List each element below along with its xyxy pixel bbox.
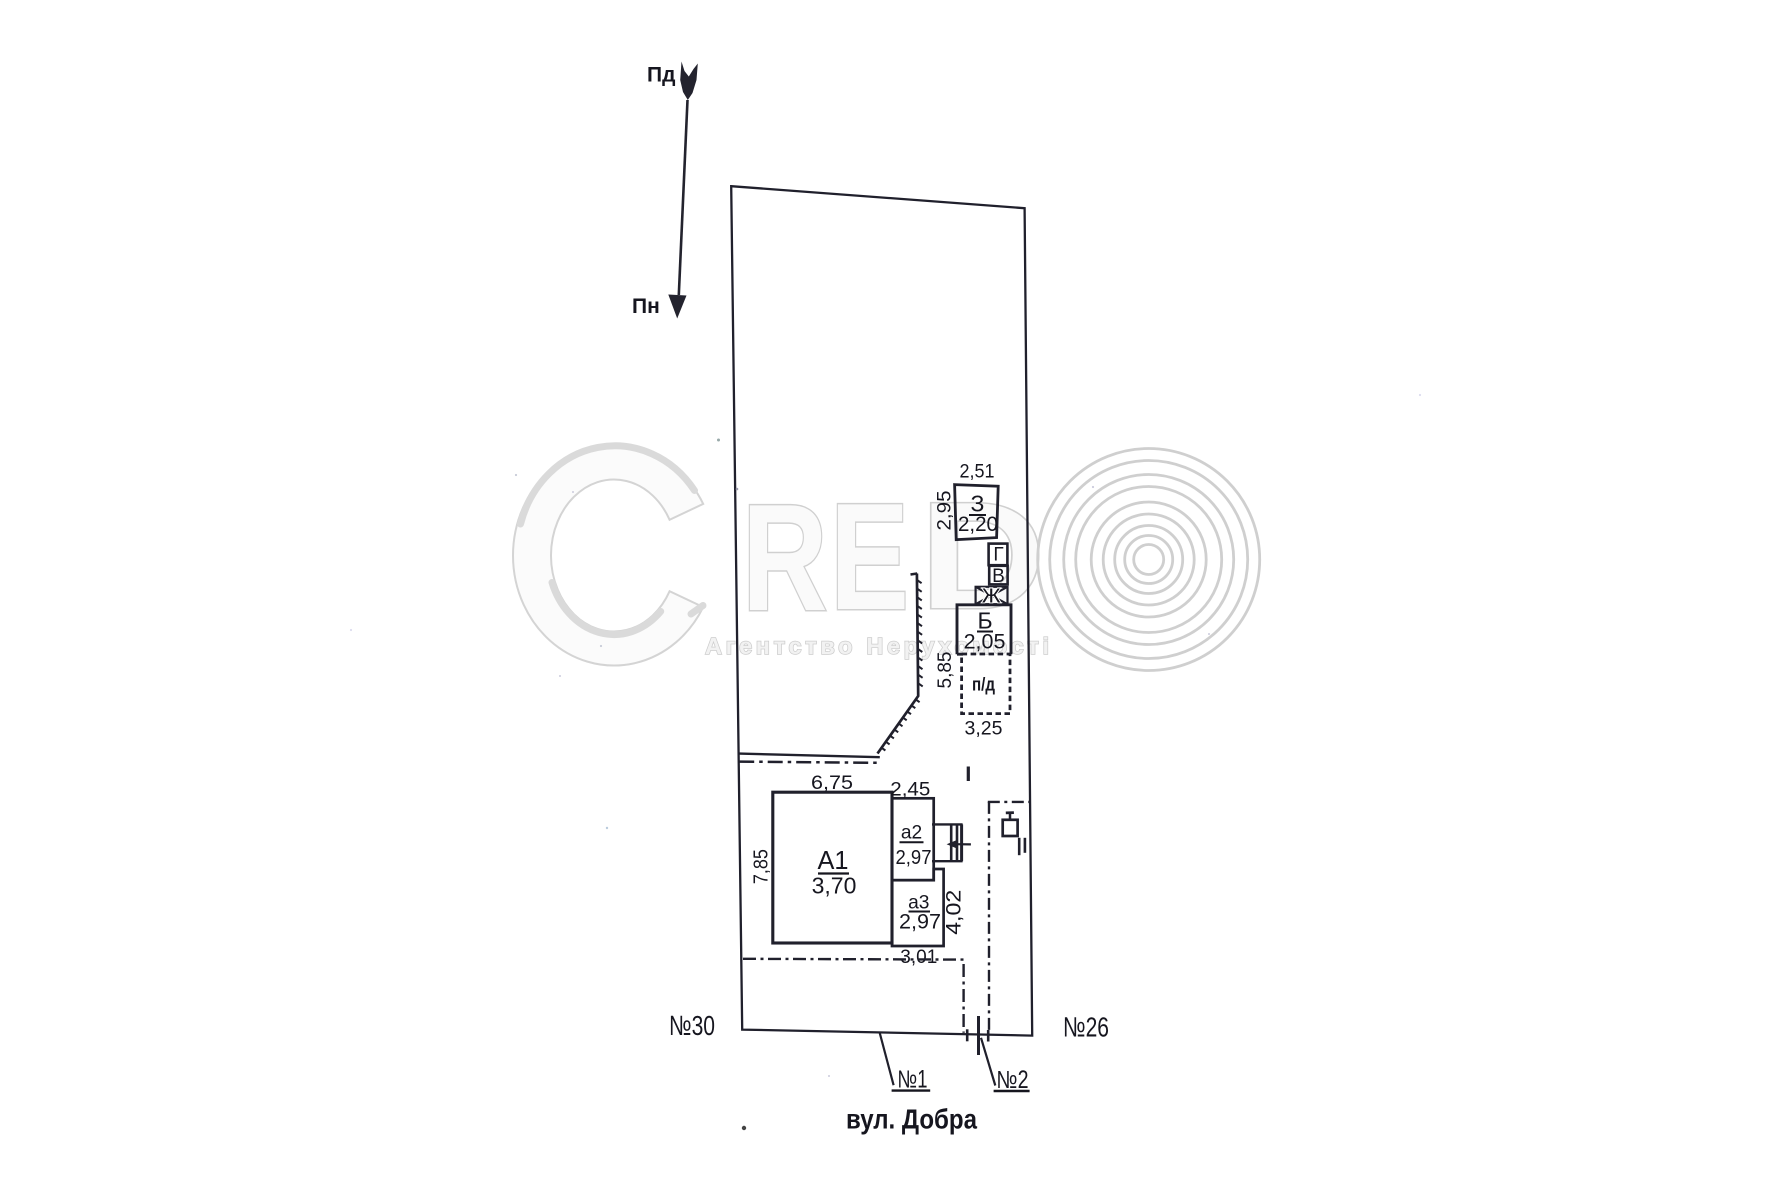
svg-text:Пд: Пд	[647, 64, 675, 87]
svg-text:2,45: 2,45	[890, 780, 930, 801]
svg-text:2,95: 2,95	[935, 491, 956, 531]
svg-text:3,25: 3,25	[965, 718, 1003, 740]
svg-text:E: E	[830, 472, 909, 641]
svg-text:Пн: Пн	[632, 295, 660, 318]
svg-text:3,01: 3,01	[900, 946, 937, 968]
svg-text:№30: №30	[669, 1010, 715, 1041]
svg-text:4,02: 4,02	[943, 890, 966, 935]
svg-text:2,51: 2,51	[960, 462, 995, 483]
svg-text:3,70: 3,70	[812, 873, 857, 899]
svg-text:А1: А1	[818, 847, 849, 875]
svg-text:7,85: 7,85	[750, 849, 773, 884]
svg-text:№26: №26	[1063, 1012, 1109, 1043]
svg-text:В: В	[992, 566, 1005, 587]
svg-text:2,20: 2,20	[958, 512, 998, 536]
svg-text:а2: а2	[901, 823, 922, 844]
svg-text:6,75: 6,75	[811, 773, 853, 794]
svg-text:п/д: п/д	[972, 675, 995, 695]
svg-text:R: R	[742, 473, 828, 642]
svg-text:Г: Г	[993, 545, 1003, 566]
svg-text:2,97: 2,97	[896, 846, 932, 869]
svg-text:2,05: 2,05	[964, 630, 1006, 654]
svg-text:2,97: 2,97	[899, 911, 941, 934]
svg-text:5,85: 5,85	[935, 652, 956, 689]
svg-text:вул. Добра: вул. Добра	[846, 1104, 977, 1135]
